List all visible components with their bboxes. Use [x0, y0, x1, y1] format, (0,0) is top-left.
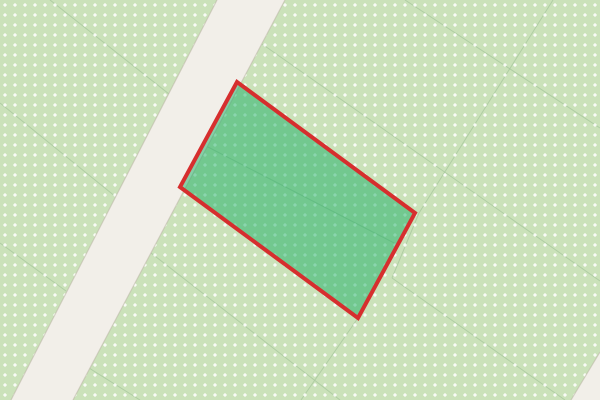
map-canvas[interactable]	[0, 0, 600, 400]
